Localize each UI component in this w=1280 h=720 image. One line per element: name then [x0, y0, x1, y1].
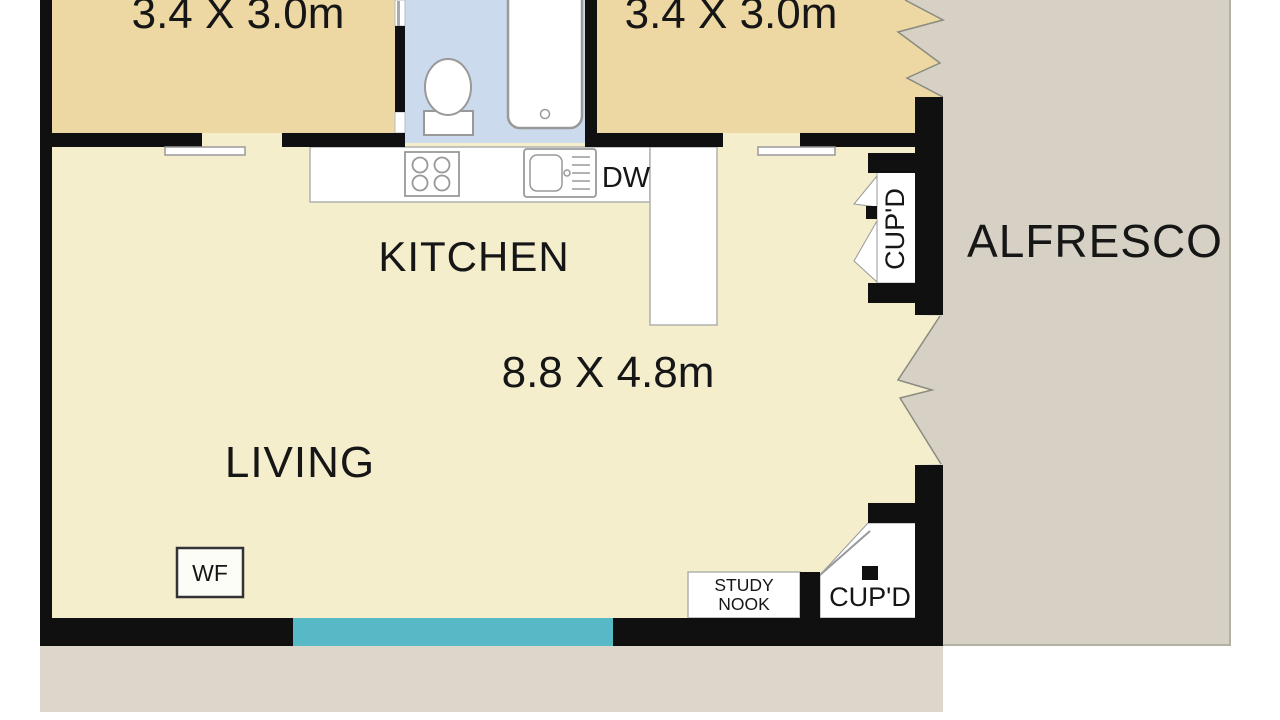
- living-dims-label: 8.8 X 4.8m: [502, 348, 715, 397]
- wall-cupboard-upper-mullion: [866, 206, 877, 219]
- door-slider-bedroom2: [758, 147, 835, 155]
- cupboard-upper-label: CUP'D: [880, 188, 910, 270]
- kitchen-counter: [310, 147, 650, 202]
- study-nook-label-line1: STUDY: [714, 575, 774, 595]
- toilet-fixture: [424, 59, 473, 135]
- living-label: LIVING: [225, 438, 375, 487]
- alfresco-label: ALFRESCO: [967, 215, 1223, 267]
- room-alfresco: [898, 0, 1230, 645]
- floorplan-page: 3.4 X 3.0m 3.4 X 3.0m KITCHEN 8.8 X 4.8m…: [0, 0, 1280, 720]
- wall-bedroom2-right: [800, 133, 917, 147]
- study-nook-label-line2: NOOK: [718, 594, 770, 614]
- bathroom-door-opening-bottom: [395, 112, 405, 133]
- wall-cupboard-upper-bottom: [868, 283, 917, 303]
- wall-cupboard-lower-stop: [862, 566, 878, 580]
- kitchen-island-bench: [650, 147, 717, 325]
- wall-cupboard-upper-top: [868, 153, 917, 173]
- wall-bedroom1-right: [282, 133, 405, 147]
- window-strip: [293, 618, 613, 646]
- wall-bathroom-left: [395, 26, 405, 112]
- bathroom-door-leaf: [397, 1, 400, 26]
- bedroom2-dims-label: 3.4 X 3.0m: [625, 0, 838, 38]
- dishwasher-label: DW: [602, 162, 651, 194]
- bathtub-fixture: [508, 0, 582, 128]
- wall-right-lower: [915, 465, 943, 646]
- wall-bathroom-right: [585, 0, 597, 147]
- kitchen-label: KITCHEN: [378, 233, 569, 280]
- wall-cupboard-lower-left: [800, 572, 820, 618]
- stove-cooktop: [405, 152, 459, 196]
- door-slider-bedroom1: [165, 147, 245, 155]
- floorplan-drawing: 3.4 X 3.0m 3.4 X 3.0m KITCHEN 8.8 X 4.8m…: [0, 0, 1280, 720]
- cupboard-lower-label: CUP'D: [829, 582, 911, 612]
- wall-bedroom1-left: [40, 133, 202, 147]
- wall-cupboard-lower-top: [868, 503, 917, 523]
- wood-fire-label: WF: [192, 560, 228, 586]
- bedroom1-dims-label: 3.4 X 3.0m: [132, 0, 345, 38]
- room-living-kitchen: [52, 133, 941, 618]
- ground-strip: [40, 646, 943, 712]
- wall-right-upper: [915, 97, 943, 315]
- wall-left-exterior: [40, 0, 52, 646]
- wall-bedroom2-left: [585, 133, 723, 147]
- kitchen-sink: [524, 149, 596, 197]
